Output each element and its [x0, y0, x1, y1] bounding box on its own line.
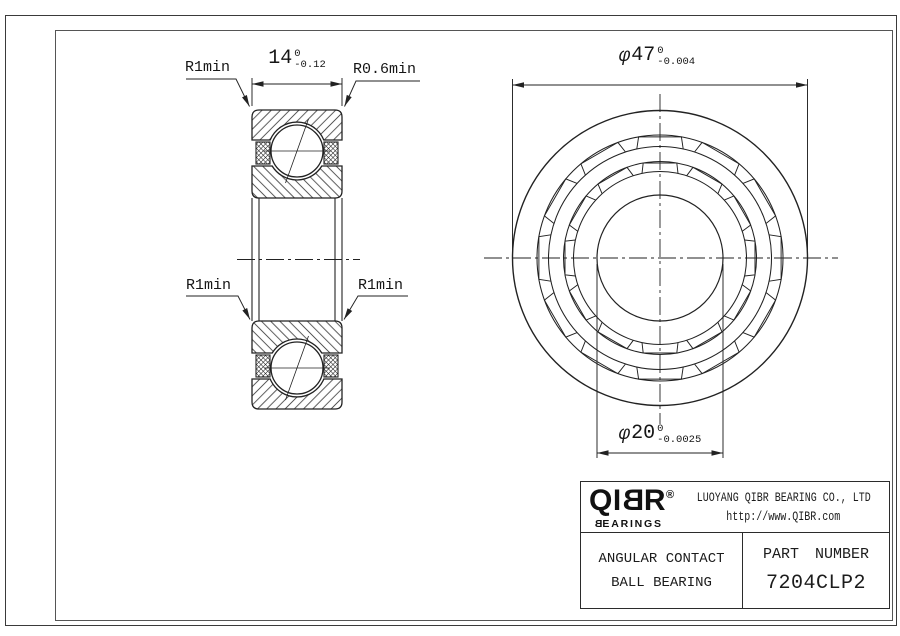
phi-symbol: φ	[619, 45, 630, 67]
width-value: 14	[268, 48, 292, 69]
part-number-cell: PART NUMBER 7204CLP2	[743, 533, 889, 608]
company-website-text: http://www.QIBR.com	[726, 510, 840, 524]
logo-letter: I	[613, 484, 622, 517]
width-tol-lower: -0.12	[294, 60, 326, 71]
leader-r06min-top-right	[345, 81, 421, 107]
company-name: LUOYANG QIBR BEARING CO., LTD	[675, 491, 893, 505]
front-view	[484, 79, 838, 458]
width-tolerance: 0 -0.12	[294, 48, 326, 72]
label-r1min-top-left: R1min	[185, 59, 230, 76]
phi-symbol: φ	[619, 423, 630, 445]
product-type-line1: ANGULAR CONTACT	[598, 551, 724, 567]
logo-letter-mirrored-b: B	[622, 486, 644, 517]
logo-subtitle: BEARINGS	[593, 518, 675, 530]
cage-bottom-left	[256, 355, 270, 377]
label-r1min-bottom-left: R1min	[186, 277, 231, 294]
label-r1min-bottom-right: R1min	[358, 277, 403, 294]
product-type-cell: ANGULAR CONTACT BALL BEARING	[581, 533, 743, 608]
logo-letter: R	[644, 484, 666, 517]
bore-dia-tol-lower: -0.0025	[657, 435, 701, 446]
logo-letter: Q	[589, 484, 613, 517]
drawing-sheet: R1min R0.6min R1min R1min 14 0 -0.12 φ 4…	[0, 0, 900, 636]
width-dimension-text: 14 0 -0.12	[227, 48, 367, 72]
leader-r1min-bottom-left	[186, 296, 250, 320]
company-logo: QIBR® BEARINGS	[581, 482, 675, 532]
outer-dia-value: 47	[631, 45, 655, 66]
outer-dia-tol-lower: -0.004	[657, 57, 695, 68]
cage-bottom-right	[324, 355, 338, 377]
cage-top-left	[256, 142, 270, 164]
cage-top-right	[324, 142, 338, 164]
product-type-line2: BALL BEARING	[611, 575, 712, 591]
title-block-header-row: QIBR® BEARINGS LUOYANG QIBR BEARING CO.,…	[581, 482, 889, 533]
bore-dia-dimension-text: φ 20 0 -0.0025	[590, 423, 730, 447]
part-number-value: 7204CLP2	[766, 572, 866, 595]
part-number-label: PART NUMBER	[763, 546, 869, 563]
company-website: http://www.QIBR.com	[712, 510, 855, 524]
title-block-detail-row: ANGULAR CONTACT BALL BEARING PART NUMBER…	[581, 533, 889, 608]
bore-dia-value: 20	[631, 423, 655, 444]
width-extension-lines	[252, 78, 342, 106]
logo-wordmark: QIBR®	[589, 486, 675, 517]
outer-dia-tolerance: 0 -0.004	[657, 45, 695, 69]
logo-sub-rest: EARINGS	[602, 518, 662, 530]
leader-r1min-top-left	[186, 79, 250, 107]
outer-dia-dimension-text: φ 47 0 -0.004	[587, 45, 727, 69]
title-block: QIBR® BEARINGS LUOYANG QIBR BEARING CO.,…	[580, 481, 890, 609]
company-name-text: LUOYANG QIBR BEARING CO., LTD	[696, 491, 870, 505]
logo-sub-mirrored-b: B	[593, 518, 602, 530]
bore-dia-tolerance: 0 -0.0025	[657, 423, 701, 447]
cross-section-view	[186, 78, 420, 409]
company-info: LUOYANG QIBR BEARING CO., LTD http://www…	[675, 482, 897, 532]
leader-r1min-bottom-right	[344, 296, 408, 320]
registered-trademark-symbol: ®	[666, 489, 675, 501]
